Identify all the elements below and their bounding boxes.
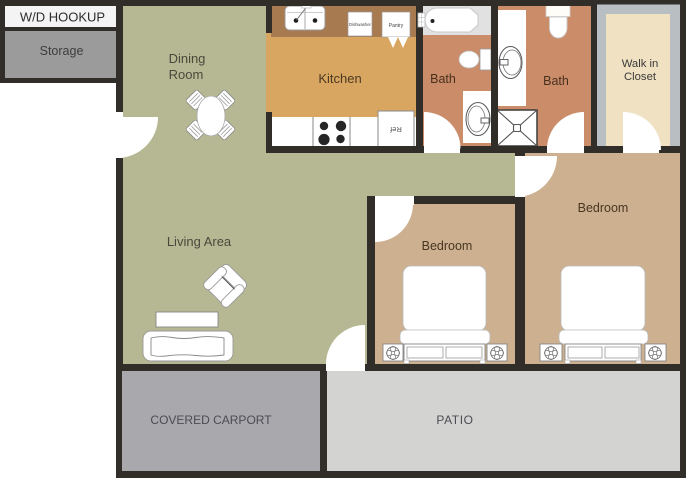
- svg-text:Room: Room: [169, 67, 204, 82]
- svg-text:COVERED CARPORT: COVERED CARPORT: [150, 413, 272, 427]
- svg-text:Bath: Bath: [430, 72, 456, 86]
- svg-text:Dishwasher: Dishwasher: [349, 22, 371, 27]
- svg-text:Walk in: Walk in: [622, 58, 659, 70]
- svg-text:Dining: Dining: [169, 51, 206, 66]
- svg-text:Bath: Bath: [543, 74, 569, 88]
- svg-text:Kitchen: Kitchen: [318, 71, 361, 86]
- svg-text:Pantry: Pantry: [389, 23, 404, 29]
- svg-text:Bedroom: Bedroom: [578, 201, 629, 215]
- svg-text:Ref: Ref: [389, 125, 402, 134]
- svg-text:Storage: Storage: [40, 44, 84, 58]
- svg-text:Living Area: Living Area: [167, 234, 232, 249]
- svg-text:Closet: Closet: [624, 71, 657, 83]
- svg-text:PATIO: PATIO: [436, 413, 473, 427]
- svg-text:Bedroom: Bedroom: [422, 239, 473, 253]
- svg-text:W/D HOOKUP: W/D HOOKUP: [20, 10, 105, 25]
